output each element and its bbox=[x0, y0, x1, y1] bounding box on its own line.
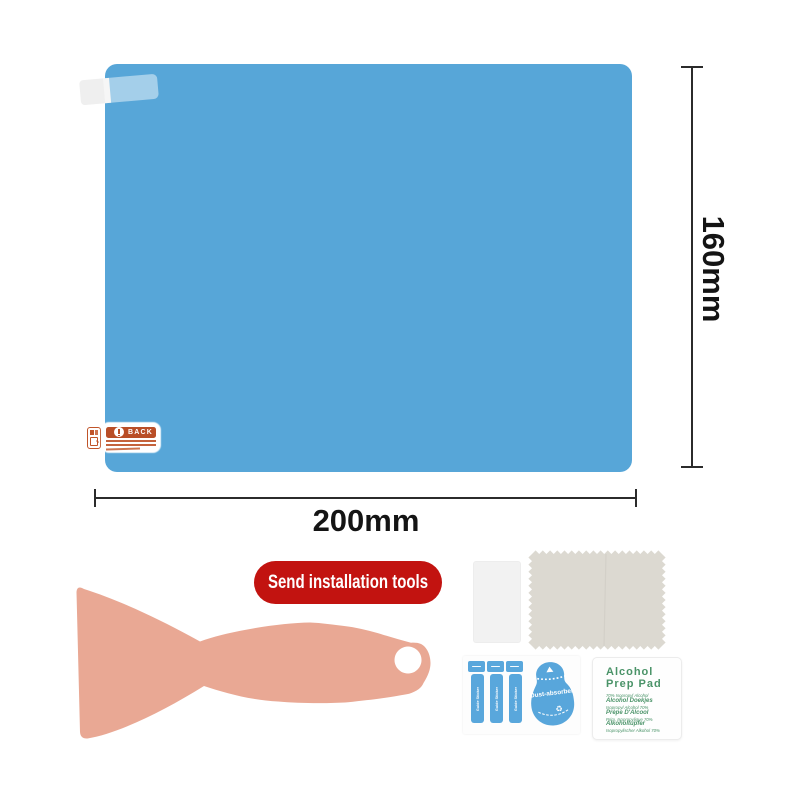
svg-text:♻: ♻ bbox=[555, 704, 563, 714]
